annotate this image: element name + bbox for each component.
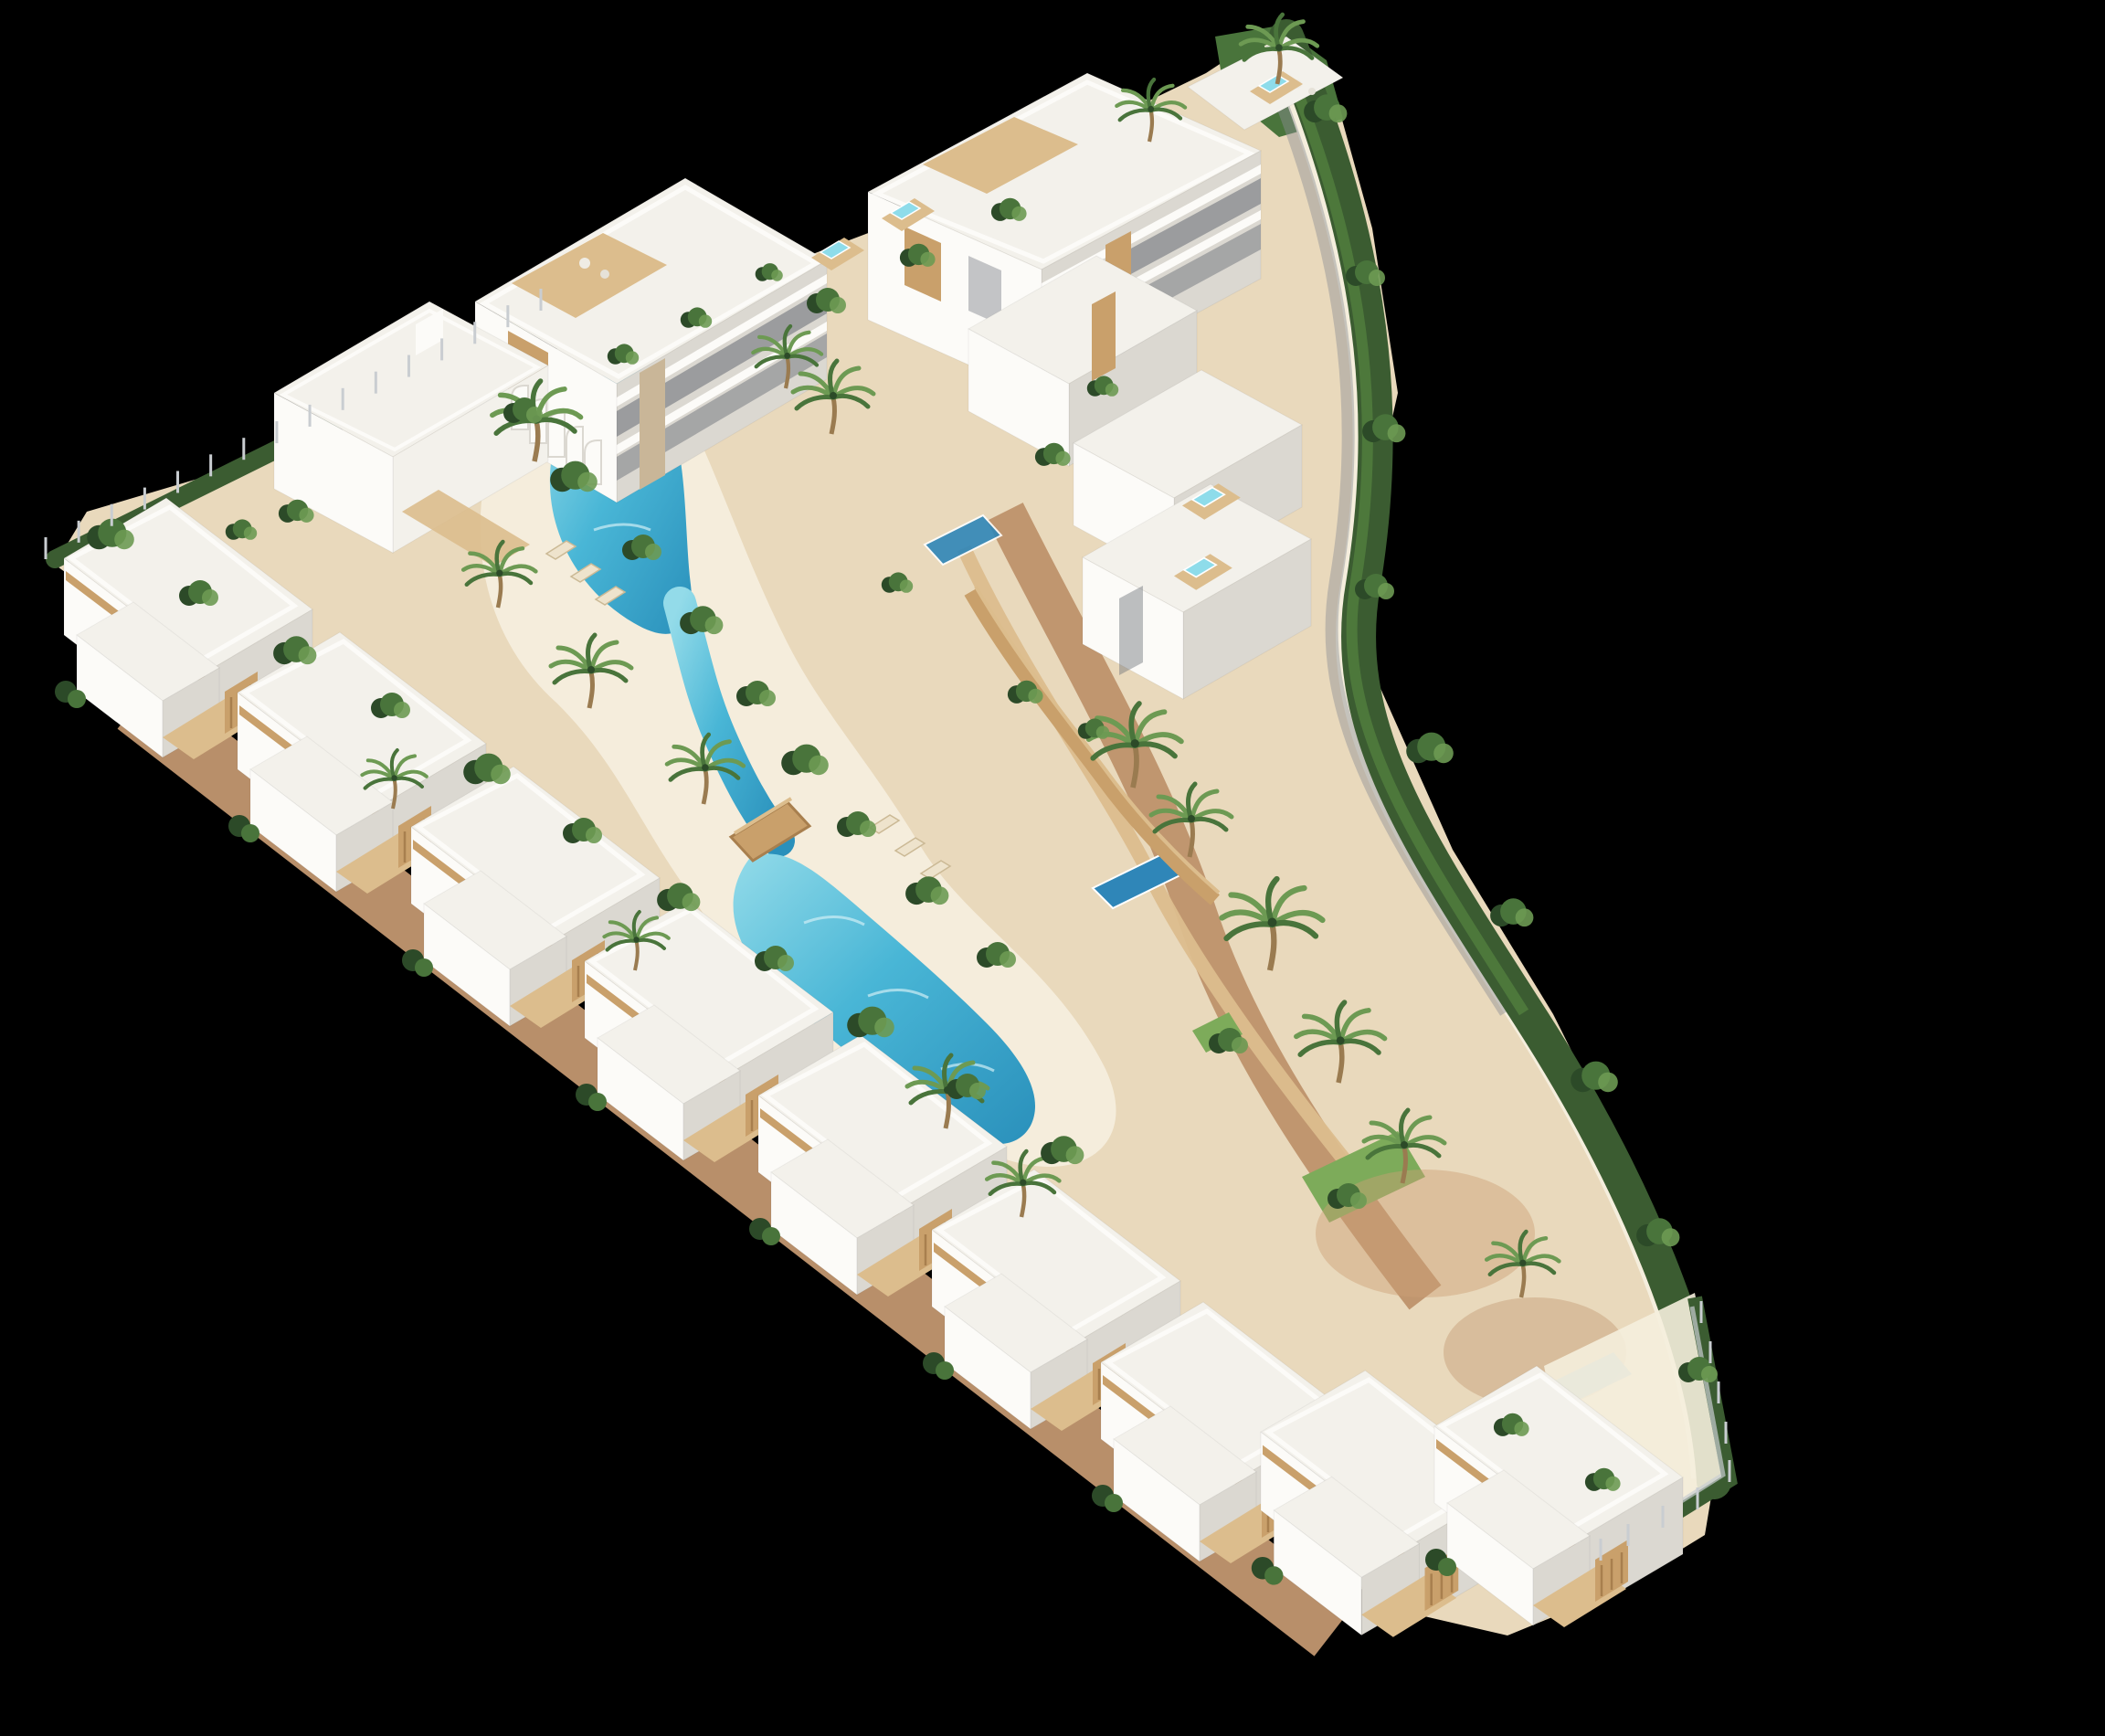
masterplan-render: architectural-3d-render bbox=[0, 0, 2105, 1736]
stone-pier bbox=[640, 358, 665, 490]
render-canvas: architectural-3d-render bbox=[0, 0, 2105, 1736]
